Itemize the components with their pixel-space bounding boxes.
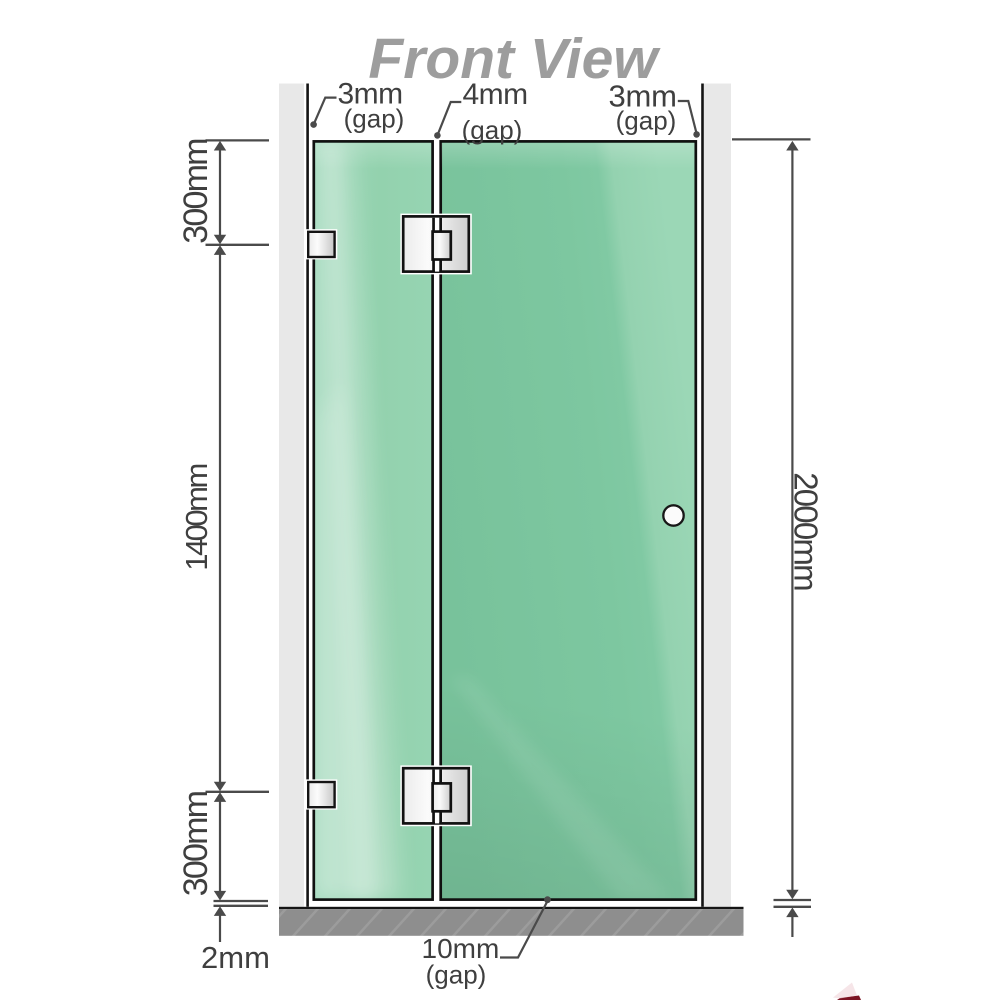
svg-text:2mm: 2mm xyxy=(201,940,270,975)
svg-text:4mm: 4mm xyxy=(463,78,528,111)
svg-text:300mm: 300mm xyxy=(177,791,215,896)
svg-text:(gap): (gap) xyxy=(616,106,677,136)
svg-text:300mm: 300mm xyxy=(177,139,215,244)
svg-text:1400mm: 1400mm xyxy=(179,465,214,571)
svg-text:(gap): (gap) xyxy=(344,104,405,134)
svg-text:(gap): (gap) xyxy=(462,115,523,145)
svg-text:2000mm: 2000mm xyxy=(788,472,825,590)
svg-text:(gap): (gap) xyxy=(426,960,487,990)
